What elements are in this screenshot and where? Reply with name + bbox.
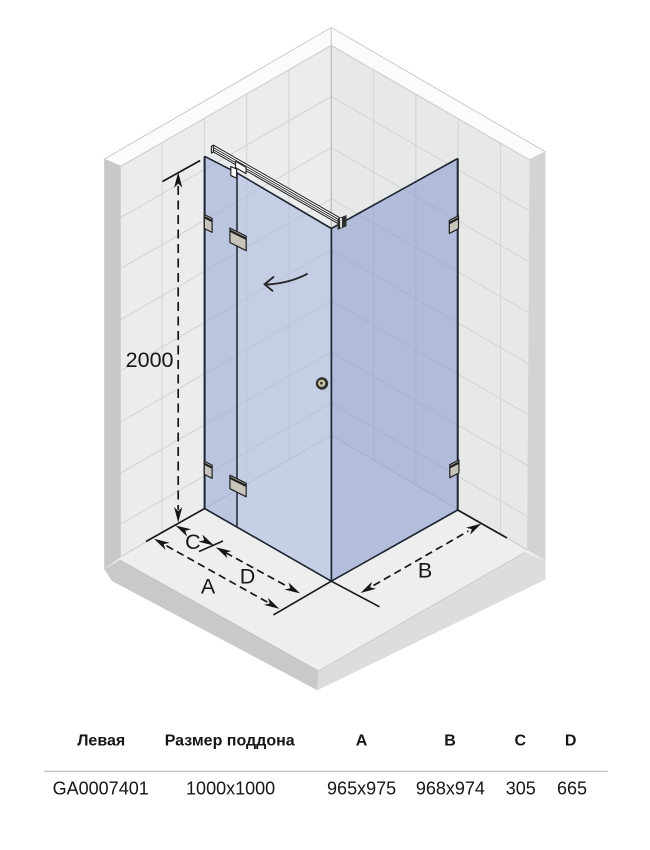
svg-text:1000x1000: 1000x1000 (186, 779, 275, 799)
svg-text:B: B (444, 732, 456, 749)
svg-text:GA0007401: GA0007401 (53, 779, 149, 799)
svg-text:665: 665 (557, 779, 587, 799)
svg-text:A: A (201, 574, 216, 598)
svg-text:C: C (185, 530, 201, 554)
svg-text:2000: 2000 (126, 348, 174, 372)
svg-text:Левая: Левая (77, 732, 125, 749)
svg-text:Размер поддона: Размер поддона (165, 732, 295, 749)
svg-text:C: C (515, 732, 527, 749)
svg-text:305: 305 (506, 779, 536, 799)
svg-text:968x974: 968x974 (416, 779, 485, 799)
svg-text:D: D (565, 732, 577, 749)
svg-text:B: B (418, 558, 432, 582)
svg-text:D: D (240, 565, 256, 589)
svg-text:965x975: 965x975 (327, 779, 396, 799)
svg-text:A: A (356, 732, 368, 749)
